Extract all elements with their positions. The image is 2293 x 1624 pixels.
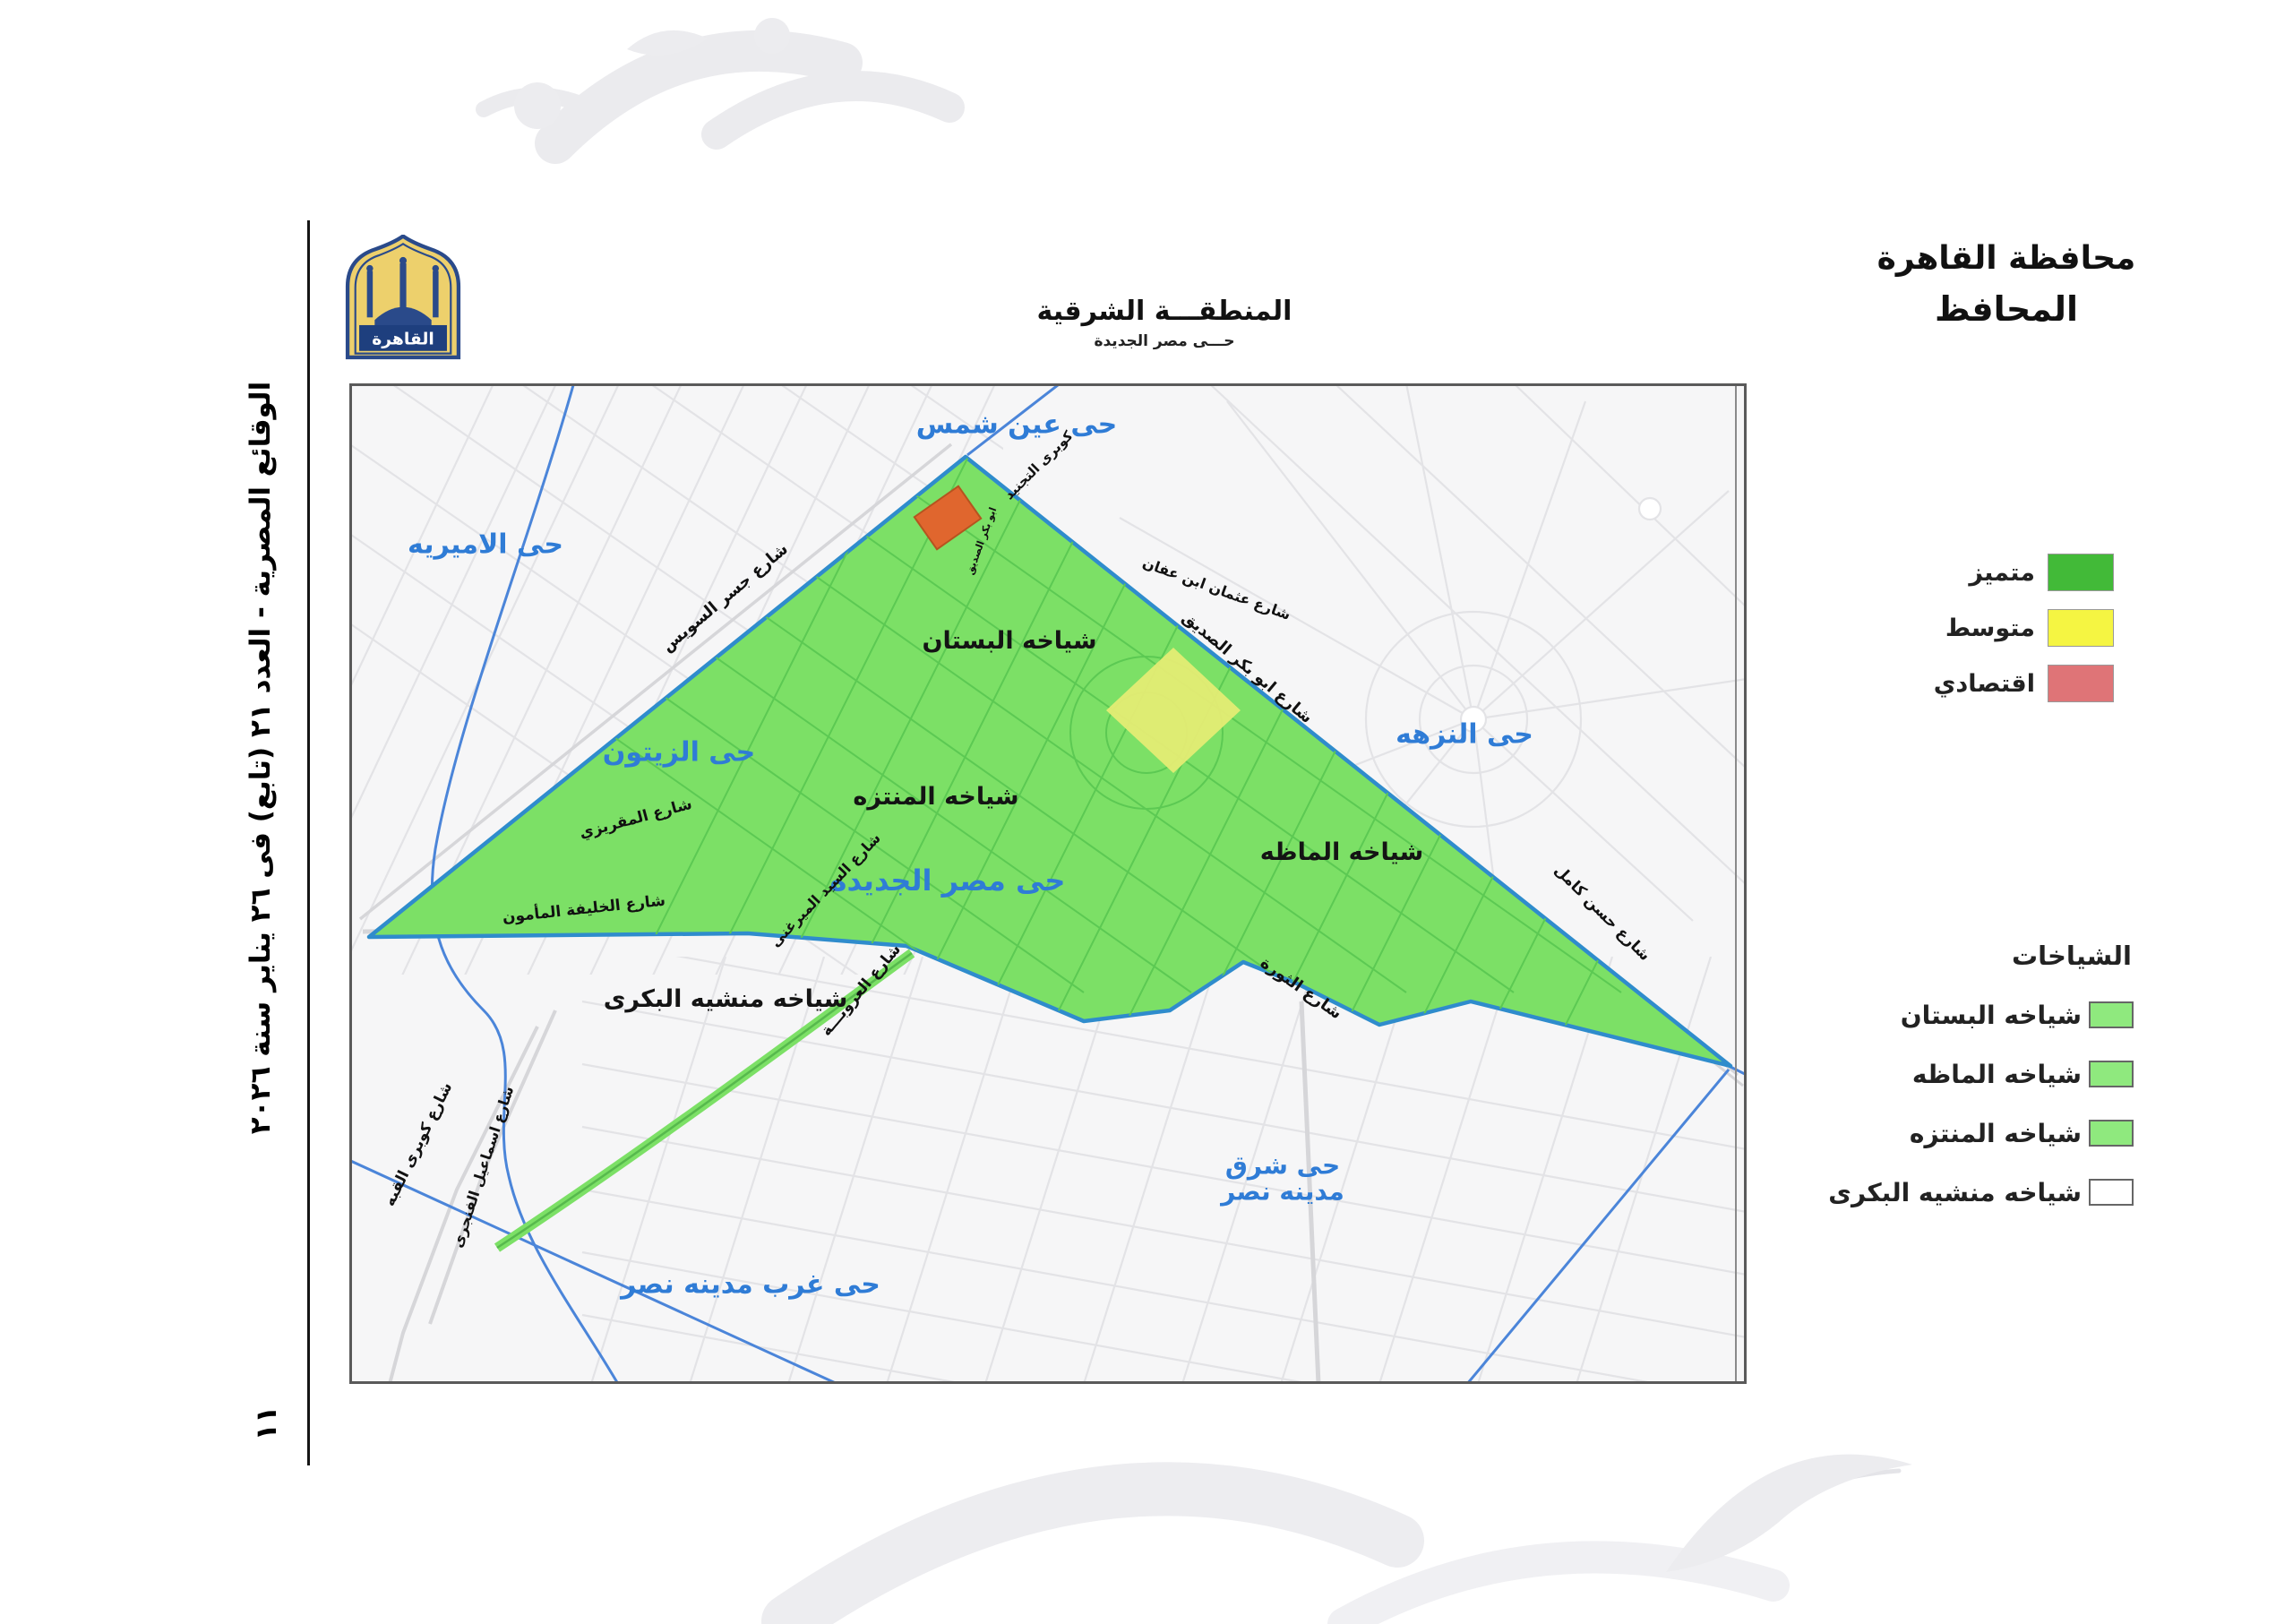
map-title-district: حـــى مصر الجديدة: [1012, 332, 1317, 350]
page-number: ١١: [249, 1383, 287, 1464]
mazah-label: شياخه الماظه: [1912, 1060, 2082, 1089]
header: محافظة القاهرة المحافظ: [1854, 240, 2159, 329]
bustan-label: شياخه البستان: [1901, 1001, 2082, 1030]
montazah-swatch: [2089, 1120, 2134, 1147]
economy-swatch: [2048, 665, 2114, 702]
manshiyet-elbakri-label: شياخه منشيه البكرى: [1828, 1178, 2082, 1207]
legend-row-premium: متميز: [1863, 545, 2114, 600]
map-title-zone: المنطقـــة الشرقية: [1012, 296, 1317, 327]
economy-label: اقتصادي: [1934, 670, 2035, 698]
legend-quality: متميز متوسط اقتصادي: [1863, 545, 2114, 711]
logo-caption: القاهرة: [372, 331, 434, 349]
district-map: [349, 383, 1747, 1384]
gazette-issue-line: الوقائع المصرية - العدد ٢١ (تابع) فى ٢٦ …: [245, 220, 286, 1295]
legend-shiakhat-title: الشياخات: [1908, 941, 2132, 971]
montazah-label: شياخه المنتزه: [1910, 1119, 2082, 1148]
legend-row-economy: اقتصادي: [1863, 656, 2114, 711]
governor-title: المحافظ: [1854, 289, 2159, 329]
legend-row-bustan: شياخه البستان: [1782, 985, 2134, 1044]
mazah-swatch: [2089, 1061, 2134, 1087]
manshiyet-elbakri-swatch: [2089, 1179, 2134, 1206]
cairo-governorate-logo-icon: القاهرة: [339, 235, 468, 360]
governorate-title: محافظة القاهرة: [1854, 240, 2159, 277]
medium-label: متوسط: [1945, 614, 2035, 642]
medium-swatch: [2048, 609, 2114, 647]
legend-row-manshiyet-elbakri: شياخه منشيه البكرى: [1782, 1163, 2134, 1222]
map-title-block: المنطقـــة الشرقية حـــى مصر الجديدة: [1012, 296, 1317, 350]
legend-row-montazah: شياخه المنتزه: [1782, 1104, 2134, 1163]
legend-row-mazah: شياخه الماظه: [1782, 1044, 2134, 1104]
legend-row-medium: متوسط: [1863, 600, 2114, 656]
premium-swatch: [2048, 554, 2114, 591]
bustan-swatch: [2089, 1001, 2134, 1028]
premium-label: متميز: [1969, 559, 2035, 587]
legend-shiakhat: شياخه البستان شياخه الماظه شياخه المنتزه…: [1782, 985, 2134, 1222]
sidebar-divider-rule: [307, 220, 310, 1465]
